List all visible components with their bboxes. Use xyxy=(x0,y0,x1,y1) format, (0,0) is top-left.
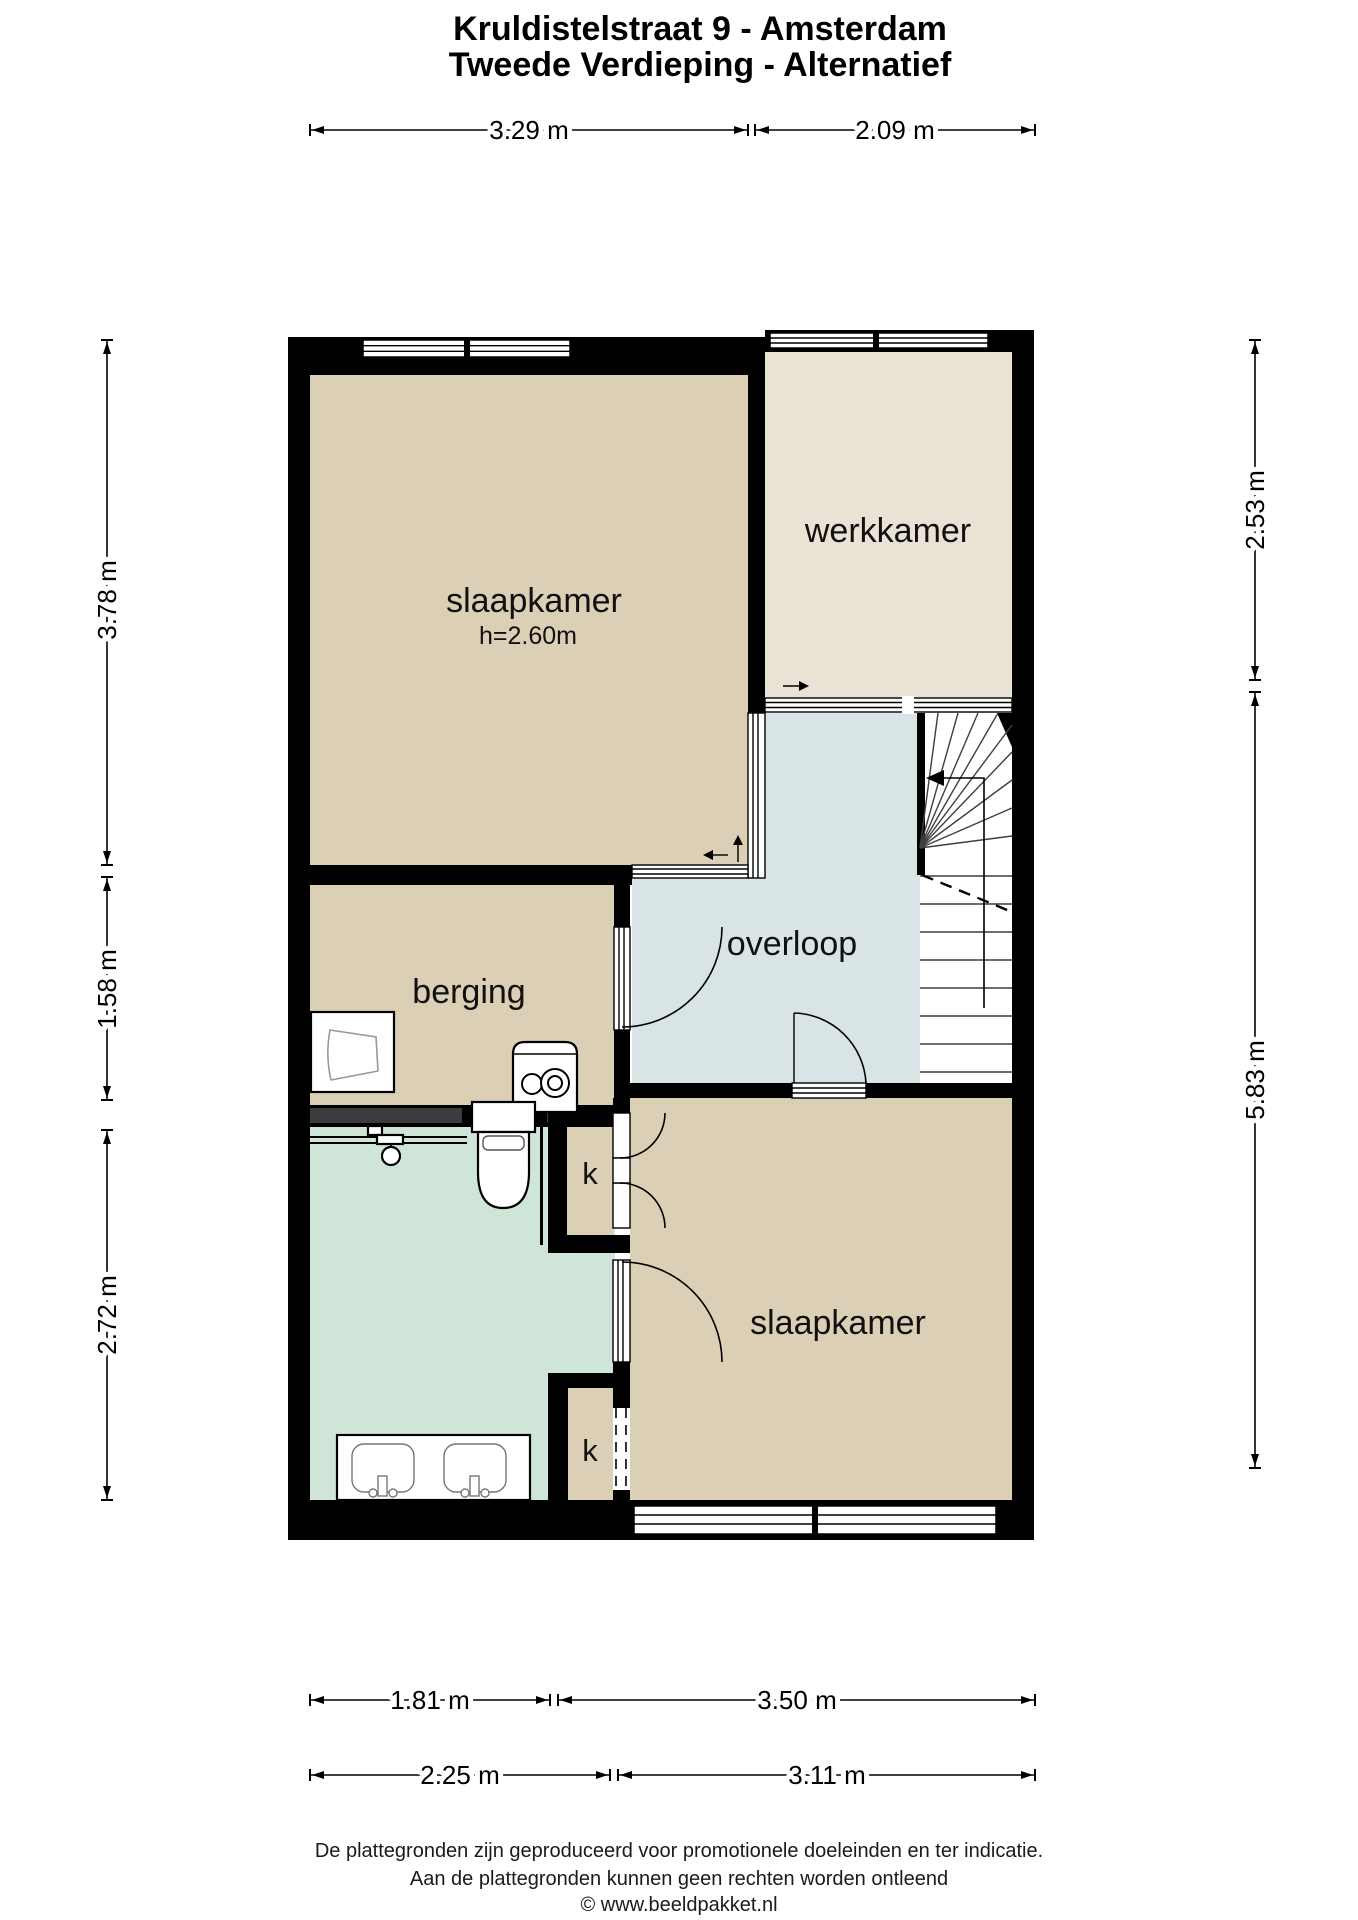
label-closet-1: k xyxy=(582,1156,598,1191)
label-slaapkamer-2: slaapkamer xyxy=(750,1304,926,1342)
footer-line-1: De plattegronden zijn geproduceerd voor … xyxy=(315,1840,1043,1862)
title-line-1: Kruldistelstraat 9 - Amsterdam xyxy=(453,10,947,48)
floor-plan: Kruldistelstraat 9 - Amsterdam Tweede Ve… xyxy=(0,0,1358,1920)
window-slaapkamer-1 xyxy=(363,340,570,357)
dim-right-1: 2.53 m xyxy=(1240,470,1270,550)
label-ceiling-height: h=2.60m xyxy=(479,622,577,650)
dim-top-2: 2.09 m xyxy=(855,115,935,145)
footer-line-3: © www.beeldpakket.nl xyxy=(580,1894,777,1916)
dim-bottom2-2: 3.11 m xyxy=(788,1760,866,1790)
dim-bottom1-2: 3.50 m xyxy=(757,1685,837,1715)
toilet-icon xyxy=(472,1102,535,1208)
shower-wall-accent xyxy=(310,1108,462,1123)
dim-bottom1-1: 1.81 m xyxy=(390,1685,470,1715)
double-sink-vanity xyxy=(337,1435,530,1500)
window-slaapkamer-2 xyxy=(634,1506,996,1534)
label-berging: berging xyxy=(412,973,525,1011)
dim-left-3: 2.72 m xyxy=(92,1275,122,1355)
dim-bottom2-1: 2.25 m xyxy=(420,1760,500,1790)
title-line-2: Tweede Verdieping - Alternatief xyxy=(449,46,952,84)
dim-top-1: 3.29 m xyxy=(489,115,569,145)
footer-disclaimer: De plattegronden zijn geproduceerd voor … xyxy=(315,1840,1043,1916)
label-werkkamer: werkkamer xyxy=(804,512,971,550)
dim-left-1: 3.78 m xyxy=(92,560,122,640)
window-werkkamer xyxy=(770,333,988,348)
floor-plan-page: Kruldistelstraat 9 - Amsterdam Tweede Ve… xyxy=(0,0,1358,1920)
dim-right-2: 5.83 m xyxy=(1240,1040,1270,1120)
page-title: Kruldistelstraat 9 - Amsterdam Tweede Ve… xyxy=(449,10,952,84)
room-slaapkamer-1-floor xyxy=(310,375,748,865)
label-overloop: overloop xyxy=(727,925,857,963)
washing-machine-icon xyxy=(311,1012,394,1092)
room-slaapkamer-2-floor xyxy=(630,1098,1012,1505)
label-slaapkamer-1: slaapkamer xyxy=(446,582,622,620)
footer-line-2: Aan de plattegronden kunnen geen rechten… xyxy=(410,1868,948,1890)
label-closet-2: k xyxy=(582,1433,598,1468)
closet-2-opening xyxy=(613,1408,630,1490)
dim-left-2: 1.58 m xyxy=(92,949,122,1029)
